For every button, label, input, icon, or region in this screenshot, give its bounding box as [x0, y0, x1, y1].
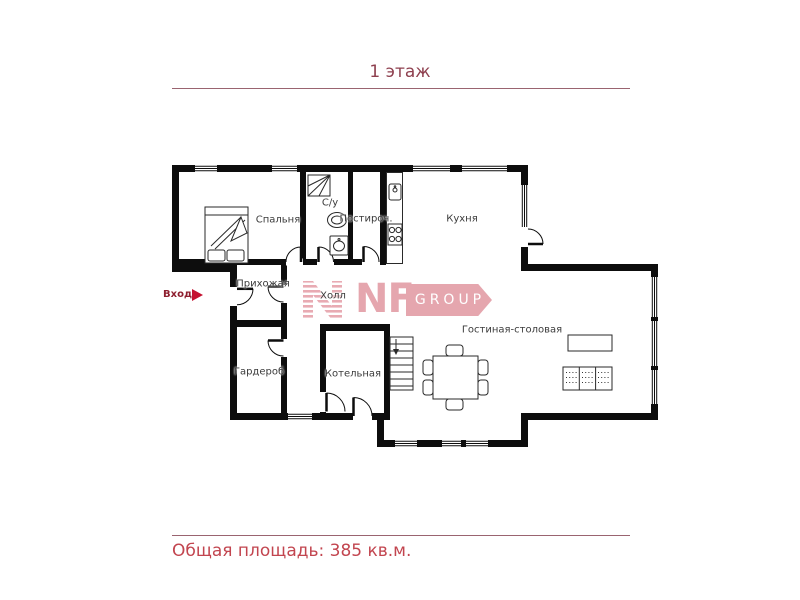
room-label-laundry: Постироч.: [339, 214, 392, 225]
stove: [388, 224, 402, 245]
bed: [205, 207, 248, 263]
stairs: [390, 337, 413, 390]
room-label-bedroom: Спальня: [256, 215, 301, 226]
nf-logo-group-banner: GROUP: [406, 284, 492, 316]
room-label-living-dining: Гостиная-столовая: [462, 325, 562, 336]
sofa: [563, 367, 612, 390]
room-label-wardrobe: Гардероб: [234, 367, 284, 378]
sideboard: [568, 335, 612, 351]
room-label-kitchen: Кухня: [446, 214, 478, 225]
shower: [308, 175, 330, 196]
footer-divider-line: [172, 535, 630, 536]
kitchen-sink: [389, 184, 401, 200]
room-label-bathroom: С/у: [322, 198, 338, 209]
dining-table: [423, 345, 488, 410]
entrance-arrow-icon: [192, 289, 203, 301]
nf-logo-text: NF: [355, 277, 414, 321]
entrance-label: Вход: [163, 289, 192, 300]
room-label-hall: Холл: [320, 291, 346, 302]
room-label-entry-hall: Прихожая: [236, 279, 290, 290]
nf-logo-group-text: GROUP: [413, 292, 485, 308]
total-area-text: Общая площадь: 385 кв.м.: [172, 541, 411, 561]
room-label-boiler-room: Котельная: [325, 369, 381, 380]
bathroom-sink: [330, 236, 348, 255]
